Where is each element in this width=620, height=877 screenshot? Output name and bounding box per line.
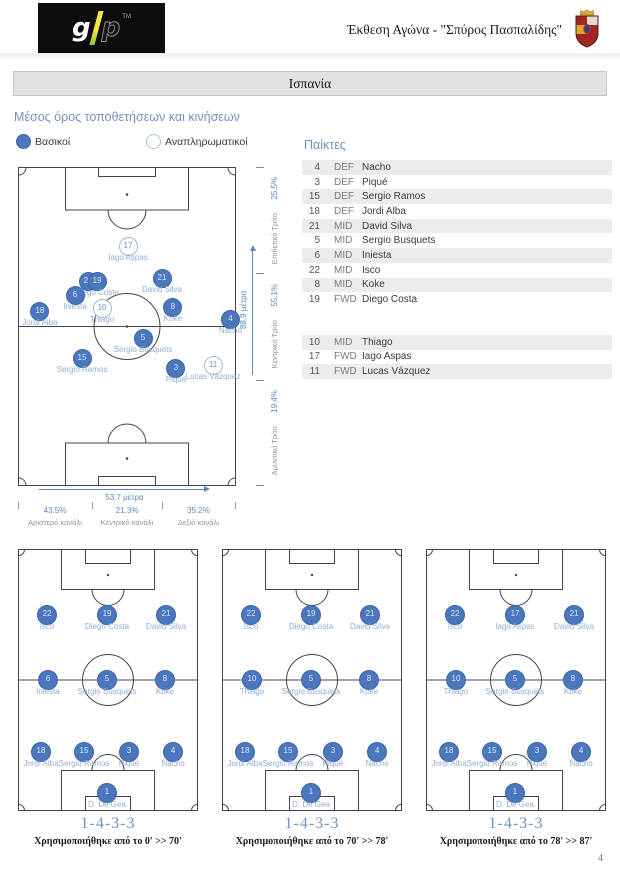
starters-legend-icon [16, 134, 31, 149]
player-marker: 21David Silva [360, 605, 380, 625]
player-name-label: D. De Gea [292, 800, 330, 810]
player-marker: 5Sergio Busquets [505, 670, 525, 690]
player-marker: 8Koke [563, 670, 583, 690]
player-marker: 17Iago Aspas [119, 237, 138, 256]
player-name-label: Koke [360, 687, 378, 697]
measure-line [252, 249, 253, 375]
player-name: Iago Aspas [362, 351, 411, 362]
starters-group: 4DEFNacho3DEFPiqué15DEFSergio Ramos18DEF… [302, 160, 612, 307]
player-number: 11 [306, 366, 320, 377]
player-number: 8 [306, 279, 320, 290]
tick-mark [256, 167, 264, 168]
player-name-label: Diego Costa [289, 622, 333, 632]
third-name: Επιθετικό Τρίτο [270, 213, 279, 264]
player-name-label: Thiago [444, 687, 468, 697]
player-name-label: Piqué [527, 759, 547, 769]
logo-trademark: TM [122, 14, 131, 20]
tick-mark [256, 380, 264, 381]
team-name-bar: Ισπανία [13, 71, 607, 96]
player-name: Sergio Ramos [362, 191, 425, 202]
player-number: 22 [306, 265, 320, 276]
player-number: 4 [306, 162, 320, 173]
formation-caption: Χρησιμοποιήθηκε από το 70' >> 78' [222, 836, 402, 847]
player-marker: 4Nacho [571, 742, 591, 762]
player-name-label: Lucas Vázquez [186, 372, 241, 382]
header-divider [0, 53, 620, 58]
player-name-label: Iago Aspas [495, 622, 535, 632]
player-marker: 8Koke [155, 670, 175, 690]
channel-name: Δεξιό κανάλι [162, 518, 235, 527]
player-marker: 10Thiago [446, 670, 466, 690]
player-marker: 18Jordi Alba [235, 742, 255, 762]
formation-name: 1-4-3-3 [222, 815, 402, 833]
player-name-label: David Silva [350, 622, 390, 632]
channel-percentage: 35.2% [162, 506, 235, 515]
player-name-label: D. De Gea [88, 800, 126, 810]
player-marker: 21David Silva [564, 605, 584, 625]
third-percentage: 25.5% [270, 177, 279, 200]
player-name-label: Isco [448, 622, 463, 632]
player-number: 21 [306, 221, 320, 232]
player-name-label: Koke [156, 687, 174, 697]
pitch-length-measure: 88.9 μέτρα [250, 245, 262, 375]
player-number: 3 [306, 177, 320, 188]
player-marker: 5Sergio Busquets [134, 329, 153, 348]
channel-cell: 35.2%Δεξιό κανάλι [162, 506, 235, 527]
roster-row: 19FWDDiego Costa [302, 292, 612, 307]
player-name-label: Jordi Alba [431, 759, 466, 769]
player-name: Isco [362, 265, 380, 276]
player-name-label: Sergio Ramos [57, 365, 108, 375]
pitch-length-value: 88.9 μέτρα [239, 245, 249, 375]
player-name-label: Jordi Alba [227, 759, 262, 769]
player-name-label: Sergio Ramos [263, 759, 314, 769]
roster-row: 22MIDIsco [302, 263, 612, 278]
player-name-label: Nacho [570, 759, 593, 769]
player-name-label: D. De Gea [496, 800, 534, 810]
player-position: FWD [334, 351, 362, 362]
arrow-up-icon [250, 245, 256, 251]
player-marker: 3Piqué [119, 742, 139, 762]
spain-crest-icon [572, 9, 602, 54]
player-marker: 1D. De Gea [505, 783, 525, 803]
formation-block: 22Isco19Diego Costa21David Silva6Iniesta… [18, 549, 198, 847]
third-name: Αμυντικό Τρίτο [270, 426, 279, 475]
report-title: Έκθεση Αγώνα - "Σπύρος Πασπαλίδης" [347, 22, 562, 38]
player-marker: 4Nacho [221, 310, 240, 329]
player-marker: 21David Silva [156, 605, 176, 625]
player-name-label: Nacho [162, 759, 185, 769]
player-name-label: Isco [244, 622, 259, 632]
player-name-label: Koke [564, 687, 582, 697]
formation-name: 1-4-3-3 [426, 815, 606, 833]
player-position: MID [334, 250, 362, 261]
channel-name: Κεντρικό κανάλι [92, 518, 162, 527]
player-position: DEF [334, 177, 362, 188]
player-name-label: Koke [164, 314, 182, 324]
player-marker: 4Nacho [163, 742, 183, 762]
logo-letter-p: p [102, 13, 121, 43]
player-marker: 18Jordi Alba [31, 742, 51, 762]
player-marker: 4Nacho [367, 742, 387, 762]
player-name: Diego Costa [362, 294, 417, 305]
player-position: MID [334, 235, 362, 246]
player-name: Koke [362, 279, 385, 290]
player-name-label: Piqué [166, 375, 186, 385]
player-name-label: Sergio Busquets [78, 687, 137, 697]
formation-pitch: 22Isco17Iago Aspas21David Silva10Thiago5… [426, 549, 606, 811]
player-number: 18 [306, 206, 320, 217]
player-name: Iniesta [362, 250, 391, 261]
roster-row: 17FWDIago Aspas [302, 350, 612, 365]
player-name-label: Piqué [119, 759, 139, 769]
player-number: 10 [306, 337, 320, 348]
player-name: David Silva [362, 221, 412, 232]
player-position: MID [334, 337, 362, 348]
player-name-label: Iniesta [36, 687, 60, 697]
player-name-label: Sergio Busquets [486, 687, 545, 697]
formation-block: 22Isco17Iago Aspas21David Silva10Thiago5… [426, 549, 606, 847]
players-table-title: Παίκτες [304, 138, 612, 152]
player-name-label: Iniesta [63, 302, 87, 312]
roster-row: 10MIDThiago [302, 335, 612, 350]
player-marker: 19Diego Costa [88, 272, 107, 291]
player-marker: 18Jordi Alba [439, 742, 459, 762]
player-marker: 22Isco [37, 605, 57, 625]
player-name: Lucas Vázquez [362, 366, 430, 377]
player-name-label: Jordi Alba [23, 759, 58, 769]
player-marker: 6Iniesta [66, 286, 85, 305]
player-number: 6 [306, 250, 320, 261]
pitch-width-value: 53.7 μέτρα [39, 493, 210, 502]
roster-row: 15DEFSergio Ramos [302, 189, 612, 204]
roster-row: 8MIDKoke [302, 278, 612, 293]
player-marker: 10Thiago [242, 670, 262, 690]
player-marker: 19Diego Costa [97, 605, 117, 625]
player-position: MID [334, 265, 362, 276]
arrow-right-icon [204, 486, 210, 492]
player-marker: 17Iago Aspas [505, 605, 525, 625]
starters-legend-label: Βασικοί [35, 136, 70, 148]
page-number: 4 [598, 853, 603, 864]
player-marker: 1D. De Gea [301, 783, 321, 803]
player-position: MID [334, 279, 362, 290]
player-marker: 15Sergio Ramos [482, 742, 502, 762]
player-name-label: Thiago [240, 687, 264, 697]
player-marker: 6Iniesta [38, 670, 58, 690]
player-marker: 21David Silva [153, 269, 172, 288]
player-name-label: Sergio Busquets [282, 687, 341, 697]
player-number: 19 [306, 294, 320, 305]
player-marker: 3Piqué [166, 359, 185, 378]
player-marker: 8Koke [359, 670, 379, 690]
channel-percentage: 43.5% [18, 506, 92, 515]
measure-line [39, 489, 208, 490]
channel-percentages: 43.5%Αριστερό κανάλι21.3%Κεντρικό κανάλι… [18, 502, 236, 526]
player-name: Nacho [362, 162, 391, 173]
tick-mark [235, 502, 236, 509]
player-marker: 18Jordi Alba [30, 302, 49, 321]
player-number: 5 [306, 235, 320, 246]
roster-row: 4DEFNacho [302, 160, 612, 175]
player-marker: 5Sergio Busquets [301, 670, 321, 690]
formation-pitch: 22Isco19Diego Costa21David Silva10Thiago… [222, 549, 402, 811]
pitch-width-measure: 53.7 μέτρα [39, 489, 210, 502]
player-name-label: Sergio Ramos [467, 759, 518, 769]
player-marker: 15Sergio Ramos [73, 349, 92, 368]
formation-pitch: 22Isco19Diego Costa21David Silva6Iniesta… [18, 549, 198, 811]
roster-row: 5MIDSergio Busquets [302, 233, 612, 248]
player-name-label: Sergio Ramos [59, 759, 110, 769]
player-name-label: Diego Costa [85, 622, 129, 632]
player-marker: 22Isco [241, 605, 261, 625]
logo-letter-g: g [72, 13, 91, 43]
third-name: Κεντρικό Τρίτο [270, 320, 279, 368]
channel-name: Αριστερό κανάλι [18, 518, 92, 527]
formation-block: 22Isco19Diego Costa21David Silva10Thiago… [222, 549, 402, 847]
player-name-label: Sergio Busquets [114, 345, 173, 355]
player-position: FWD [334, 366, 362, 377]
channel-cell: 21.3%Κεντρικό κανάλι [92, 506, 162, 527]
player-number: 15 [306, 191, 320, 202]
player-position: DEF [334, 191, 362, 202]
third-percentage: 19.4% [270, 390, 279, 413]
player-name: Piqué [362, 177, 388, 188]
pitch-thirds-labels: Επιθετικό Τρίτο 25.5%Κεντρικό Τρίτο 55.1… [266, 167, 286, 486]
player-marker: 8Koke [163, 298, 182, 317]
player-position: DEF [334, 162, 362, 173]
player-name-label: Piqué [323, 759, 343, 769]
player-marker: 22Isco [445, 605, 465, 625]
substitutes-group: 10MIDThiago17FWDIago Aspas11FWDLucas Váz… [302, 335, 612, 379]
player-name: Jordi Alba [362, 206, 406, 217]
pitch-third-label: Αμυντικό Τρίτο 19.4% [266, 380, 286, 486]
player-marker: 5Sergio Busquets [97, 670, 117, 690]
player-name-label: David Silva [554, 622, 594, 632]
players-table: Παίκτες 4DEFNacho3DEFPiqué15DEFSergio Ra… [302, 138, 612, 379]
player-number: 17 [306, 351, 320, 362]
channel-percentage: 21.3% [92, 506, 162, 515]
formation-name: 1-4-3-3 [18, 815, 198, 833]
roster-row: 18DEFJordi Alba [302, 204, 612, 219]
formation-caption: Χρησιμοποιήθηκε από το 0' >> 70' [18, 836, 198, 847]
player-name: Sergio Busquets [362, 235, 435, 246]
avg-positions-title: Μέσος όρος τοποθετήσεων και κινήσεων [14, 110, 240, 124]
third-percentage: 55.1% [270, 284, 279, 307]
company-logo: g p TM [38, 3, 165, 53]
formation-caption: Χρησιμοποιήθηκε από το 78' >> 87' [426, 836, 606, 847]
pitch-third-label: Επιθετικό Τρίτο 25.5% [266, 167, 286, 273]
substitutes-legend-icon [146, 134, 161, 149]
roster-row: 11FWDLucas Vázquez [302, 364, 612, 379]
average-position-pitch: 17Iago Aspas2219Diego Costa21David Silva… [18, 167, 236, 486]
channel-cell: 43.5%Αριστερό κανάλι [18, 506, 92, 527]
player-marker: 10Thiago [93, 299, 112, 318]
player-position: DEF [334, 206, 362, 217]
roster-row: 21MIDDavid Silva [302, 219, 612, 234]
player-name-label: Iago Aspas [108, 253, 148, 263]
report-page: g p TM Έκθεση Αγώνα - "Σπύρος Πασπαλίδης… [0, 0, 620, 877]
player-marker: 15Sergio Ramos [278, 742, 298, 762]
player-marker: 3Piqué [527, 742, 547, 762]
player-marker: 3Piqué [323, 742, 343, 762]
player-name-label: Isco [40, 622, 55, 632]
player-marker: 15Sergio Ramos [74, 742, 94, 762]
roster-row: 6MIDIniesta [302, 248, 612, 263]
player-position: MID [334, 221, 362, 232]
substitutes-legend-label: Αναπληρωματικοί [165, 136, 248, 148]
player-position: FWD [334, 294, 362, 305]
tick-mark [256, 485, 264, 486]
player-name-label: Nacho [366, 759, 389, 769]
player-name-label: David Silva [142, 285, 182, 295]
player-name-label: Thiago [90, 315, 114, 325]
player-name-label: David Silva [146, 622, 186, 632]
pitch-third-label: Κεντρικό Τρίτο 55.1% [266, 273, 286, 379]
roster-row: 3DEFPiqué [302, 175, 612, 190]
player-name-label: Jordi Alba [22, 318, 57, 328]
player-marker: 1D. De Gea [97, 783, 117, 803]
player-marker: 11Lucas Vázquez [204, 356, 223, 375]
player-name: Thiago [362, 337, 393, 348]
player-marker: 19Diego Costa [301, 605, 321, 625]
